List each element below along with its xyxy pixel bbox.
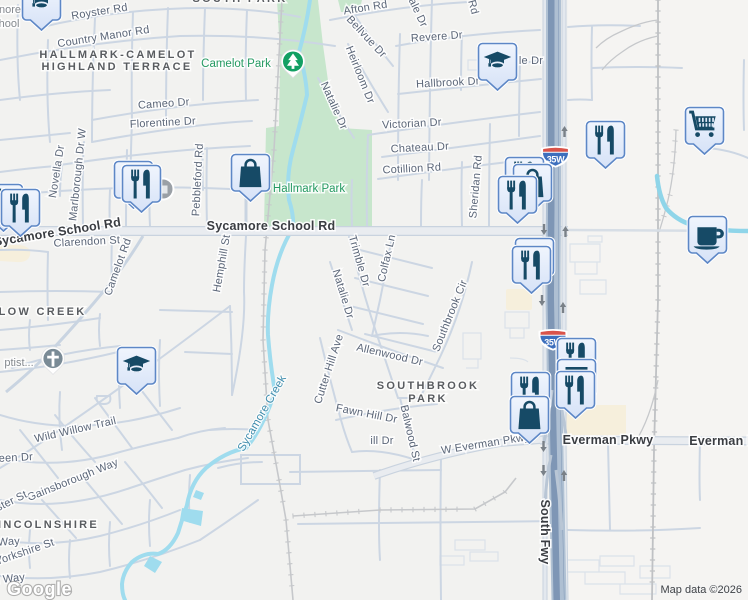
- svg-text:Google: Google: [7, 579, 72, 599]
- svg-text:hool: hool: [0, 18, 19, 30]
- svg-text:HALLMARK-CAMELOT: HALLMARK-CAMELOT: [39, 49, 196, 61]
- svg-text:een Dr: een Dr: [0, 451, 33, 465]
- svg-text:PARK: PARK: [408, 393, 448, 405]
- svg-text:Camelot Park: Camelot Park: [201, 58, 271, 70]
- svg-text:Everman Pk: Everman Pk: [689, 434, 748, 448]
- svg-text:nore: nore: [0, 4, 21, 16]
- svg-text:ptist...: ptist...: [4, 357, 33, 369]
- svg-text:Sycamore School Rd: Sycamore School Rd: [207, 219, 336, 233]
- svg-text:Hallmark Park: Hallmark Park: [273, 183, 345, 195]
- svg-text:SOUTH PARK: SOUTH PARK: [193, 0, 288, 5]
- svg-text:Map data ©2026: Map data ©2026: [661, 584, 743, 596]
- svg-text:Everman Pkwy: Everman Pkwy: [563, 433, 654, 447]
- svg-text:HIGHLAND TERRACE: HIGHLAND TERRACE: [41, 61, 192, 73]
- svg-text:SOUTHBROOK: SOUTHBROOK: [377, 380, 479, 392]
- svg-text:South Fwy: South Fwy: [538, 500, 552, 565]
- svg-text:ill Dr: ill Dr: [370, 435, 393, 447]
- svg-text:le Dr: le Dr: [519, 55, 543, 67]
- svg-text:Way: Way: [0, 535, 21, 548]
- svg-text:LINCOLNSHIRE: LINCOLNSHIRE: [0, 519, 99, 531]
- svg-text:WILLOW CREEK: WILLOW CREEK: [0, 306, 86, 318]
